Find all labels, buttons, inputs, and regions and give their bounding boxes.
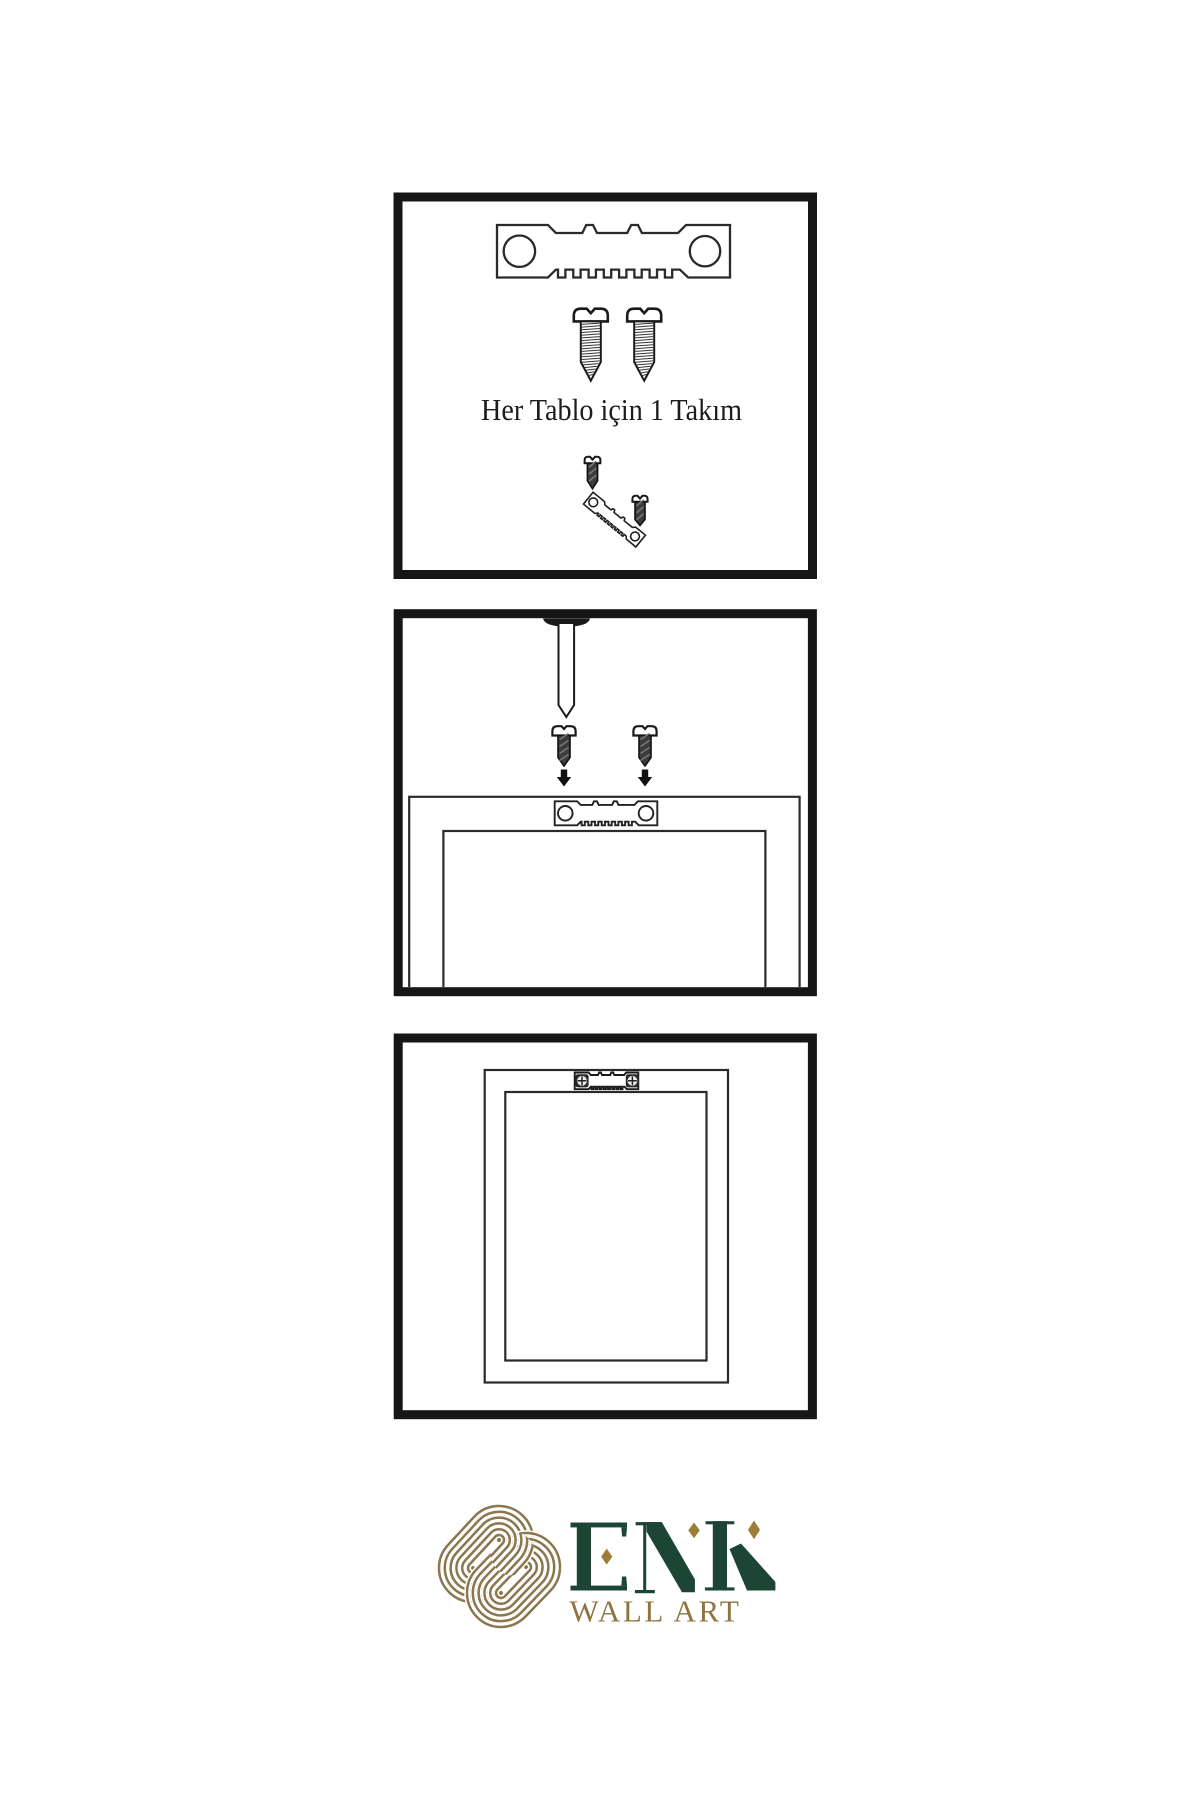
svg-text:Her Tablo için 1 Takım: Her Tablo için 1 Takım	[481, 393, 742, 427]
svg-text:WALL ART: WALL ART	[570, 1594, 739, 1629]
